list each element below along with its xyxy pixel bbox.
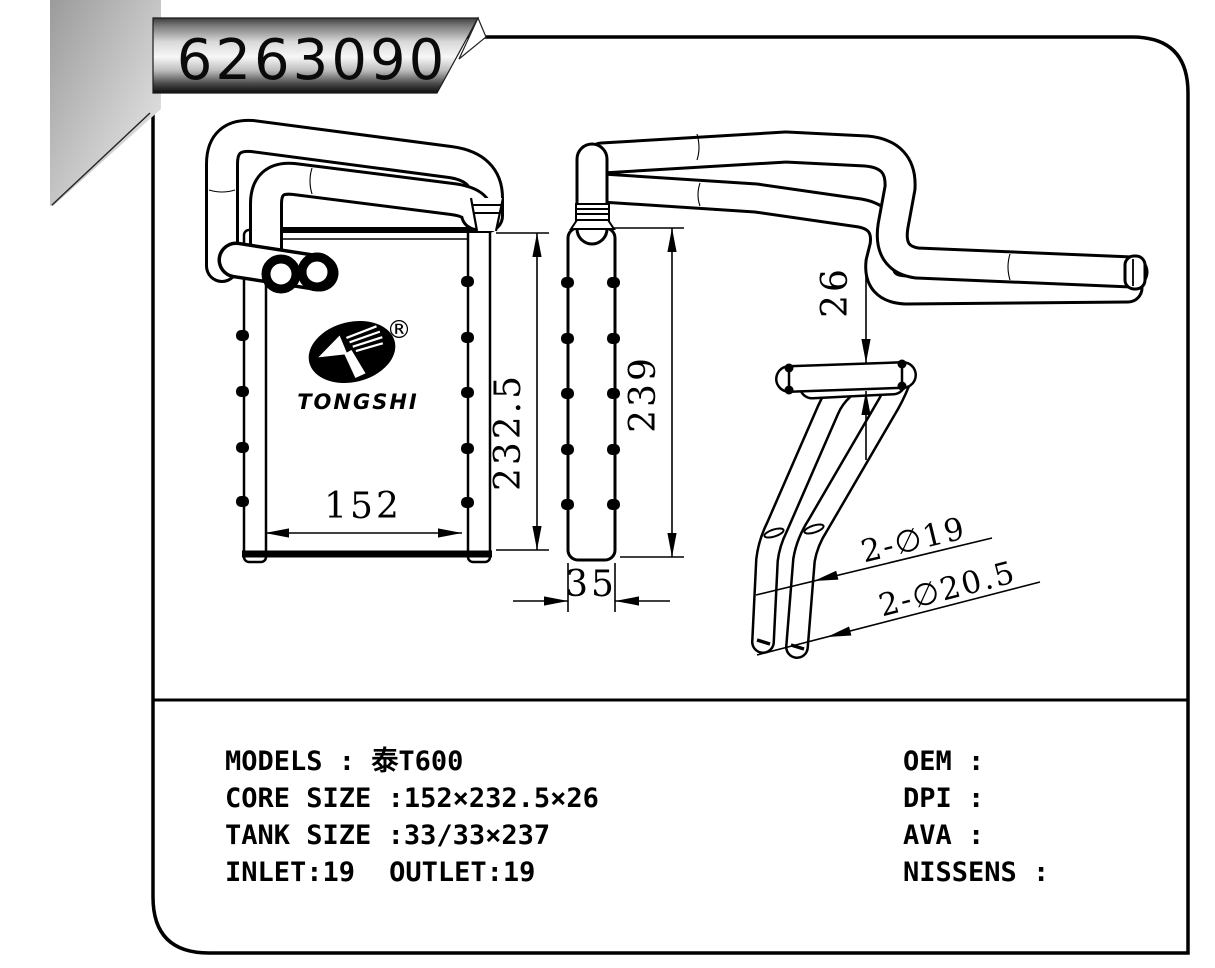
outlet-pipe-run (602, 134, 1145, 290)
dimension-core-width: 152 (265, 486, 462, 538)
dim-core-height-label: 232.5 (488, 373, 529, 491)
part-number-banner: 6263090 (153, 18, 486, 93)
dimension-tank-depth: 35 (513, 563, 670, 612)
pipe-end-cap (1125, 256, 1145, 289)
dimension-tank-height: 239 (612, 228, 684, 557)
side-view-tube (571, 159, 614, 229)
part-number: 6263090 (177, 28, 447, 93)
fold-triangle (50, 0, 161, 206)
dimension-core-height: 232.5 (488, 233, 549, 550)
dim-core-width-label: 152 (324, 486, 402, 527)
registered-trademark-icon: ® (387, 315, 412, 344)
dim-tank-depth-label: 35 (565, 564, 617, 605)
tongshi-logo: ® TONGSHI (297, 312, 419, 414)
technical-drawing-canvas: ® TONGSHI (0, 0, 1215, 968)
side-view (561, 228, 620, 560)
drawing-sheet: ® TONGSHI (0, 0, 1215, 968)
neck-flare (571, 220, 614, 229)
dim-pipe-dia-outer-label: 2-∅20.5 (875, 554, 1020, 624)
inlet-pipe-end (266, 259, 296, 289)
logo-brand-text: TONGSHI (297, 390, 419, 414)
dim-pipe-offset-label: 26 (815, 266, 856, 318)
page-fold (50, 0, 161, 206)
neck-collar (576, 204, 609, 220)
front-view-pipes (209, 136, 503, 289)
dim-tank-height-label: 239 (623, 355, 664, 433)
outlet-pipe-end (302, 257, 332, 287)
dim-pipe-dia-inner-label: 2-∅19 (858, 510, 970, 570)
